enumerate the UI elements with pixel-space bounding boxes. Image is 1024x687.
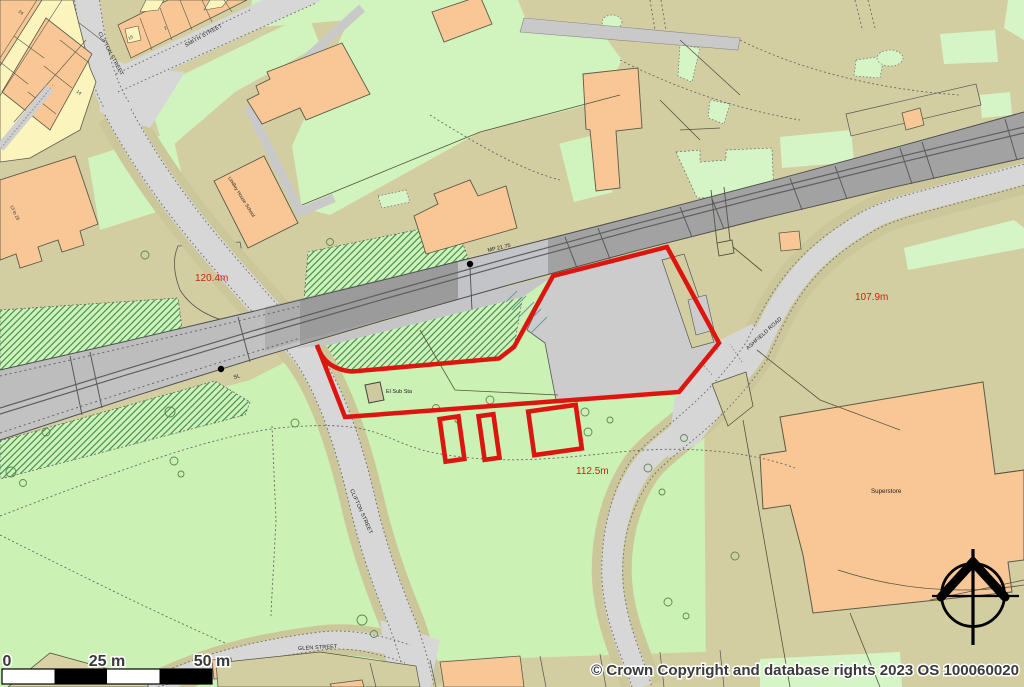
svg-text:© Crown Copyright and database: © Crown Copyright and database rights 20… (591, 662, 1019, 679)
svg-text:120.4m: 120.4m (195, 273, 228, 284)
svg-text:Superstore: Superstore (871, 488, 902, 495)
svg-text:El Sub Sta: El Sub Sta (386, 389, 413, 395)
svg-text:107.9m: 107.9m (855, 292, 888, 303)
svg-text:112.5m: 112.5m (576, 466, 609, 477)
svg-text:0: 0 (3, 653, 12, 670)
svg-text:25 m: 25 m (89, 653, 125, 670)
svg-text:50 m: 50 m (194, 653, 230, 670)
